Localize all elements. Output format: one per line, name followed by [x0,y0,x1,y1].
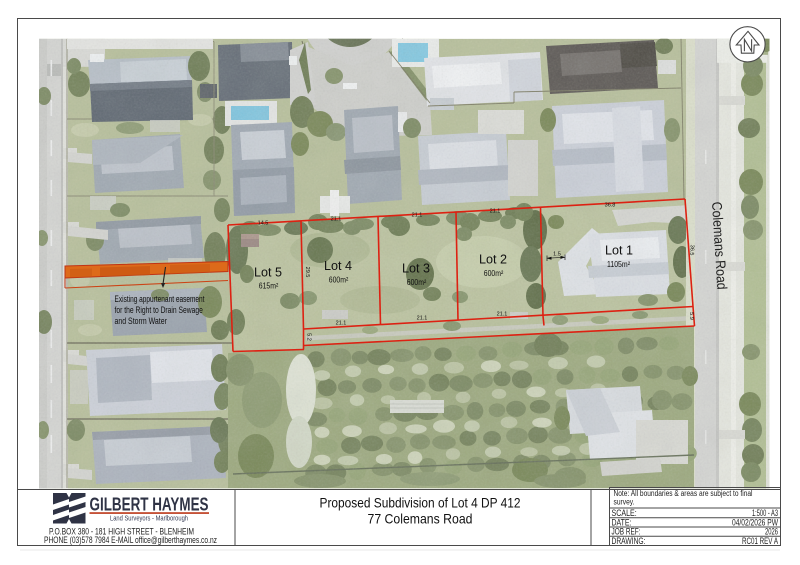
svg-text:PHONE (03)578 7984 E-MAIL offi: PHONE (03)578 7984 E-MAIL office@gilbert… [44,535,217,546]
svg-text:14.5: 14.5 [258,221,269,227]
svg-text:21.1: 21.1 [331,217,342,223]
svg-text:Lot 1: Lot 1 [605,243,633,258]
svg-text:1105m²: 1105m² [607,260,630,269]
svg-text:600m²: 600m² [329,276,349,285]
svg-text:21.1: 21.1 [417,316,428,322]
svg-text:29.5: 29.5 [304,267,310,278]
svg-text:DRAWING:: DRAWING: [612,536,646,546]
svg-text:for the Right to Drain Sewage: for the Right to Drain Sewage [115,305,203,315]
svg-text:Existing appurtenant easement: Existing appurtenant easement [115,294,205,304]
svg-text:21.1: 21.1 [490,209,501,215]
svg-text:Land Surveyors - Marlborough: Land Surveyors - Marlborough [110,513,188,522]
svg-text:5.9: 5.9 [688,312,694,320]
svg-text:36.5: 36.5 [688,245,695,256]
svg-text:1.5: 1.5 [553,252,561,258]
svg-text:21.1: 21.1 [412,213,423,219]
svg-text:21.1: 21.1 [497,312,508,318]
svg-text:600m²: 600m² [407,278,427,287]
svg-text:Lot 2: Lot 2 [479,252,507,267]
svg-text:21.1: 21.1 [336,321,347,327]
svg-text:RC01 REV A: RC01 REV A [742,536,778,546]
svg-text:Lot 5: Lot 5 [254,265,282,280]
svg-text:600m²: 600m² [484,269,504,278]
svg-text:36.8: 36.8 [605,203,616,209]
svg-text:77 Colemans Road: 77 Colemans Road [368,510,473,526]
svg-text:615m²: 615m² [259,282,279,291]
svg-text:Lot 3: Lot 3 [402,261,430,276]
svg-text:5.2: 5.2 [306,333,312,341]
svg-text:survey.: survey. [614,498,635,507]
svg-text:Proposed Subdivision of Lot 4: Proposed Subdivision of Lot 4 DP 412 [320,494,521,510]
svg-text:and Storm Water: and Storm Water [115,316,167,326]
svg-text:Lot 4: Lot 4 [324,258,352,273]
svg-text:GILBERT HAYMES: GILBERT HAYMES [90,495,209,515]
